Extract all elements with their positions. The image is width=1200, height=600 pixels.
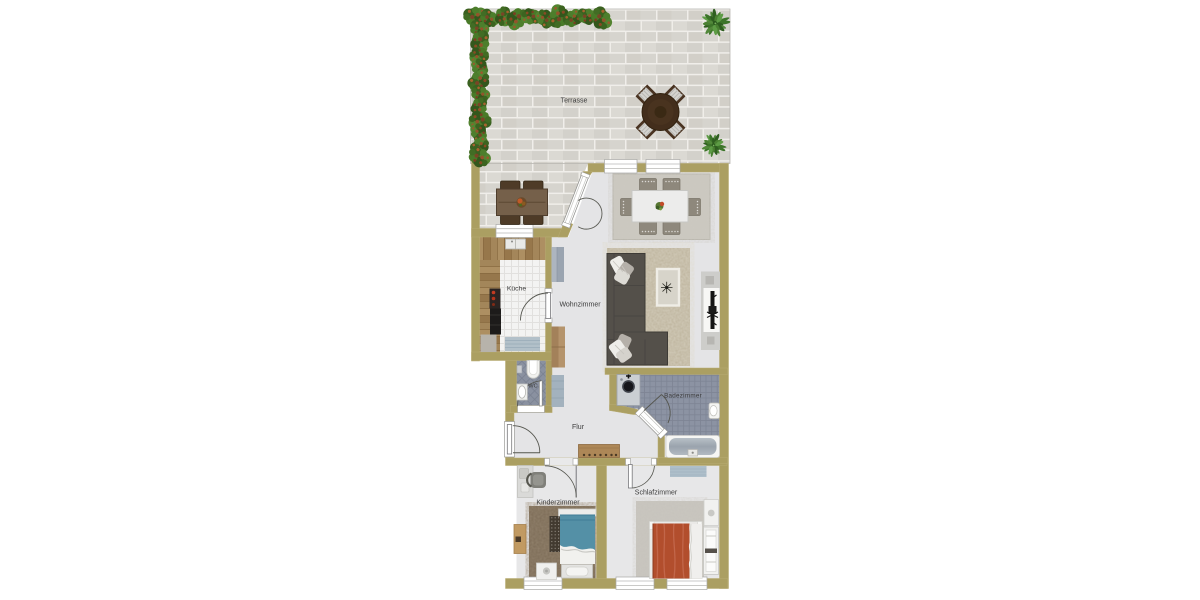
svg-text:Flur: Flur [572,424,585,431]
svg-text:Schlafzimmer: Schlafzimmer [635,490,678,497]
svg-text:Wohnzimmer: Wohnzimmer [559,302,601,309]
svg-text:Küche: Küche [507,286,526,293]
svg-text:Terrasse: Terrasse [561,98,588,105]
svg-text:Badezimmer: Badezimmer [664,393,702,400]
svg-text:WC: WC [528,384,537,390]
svg-text:Kinderzimmer: Kinderzimmer [536,500,580,507]
